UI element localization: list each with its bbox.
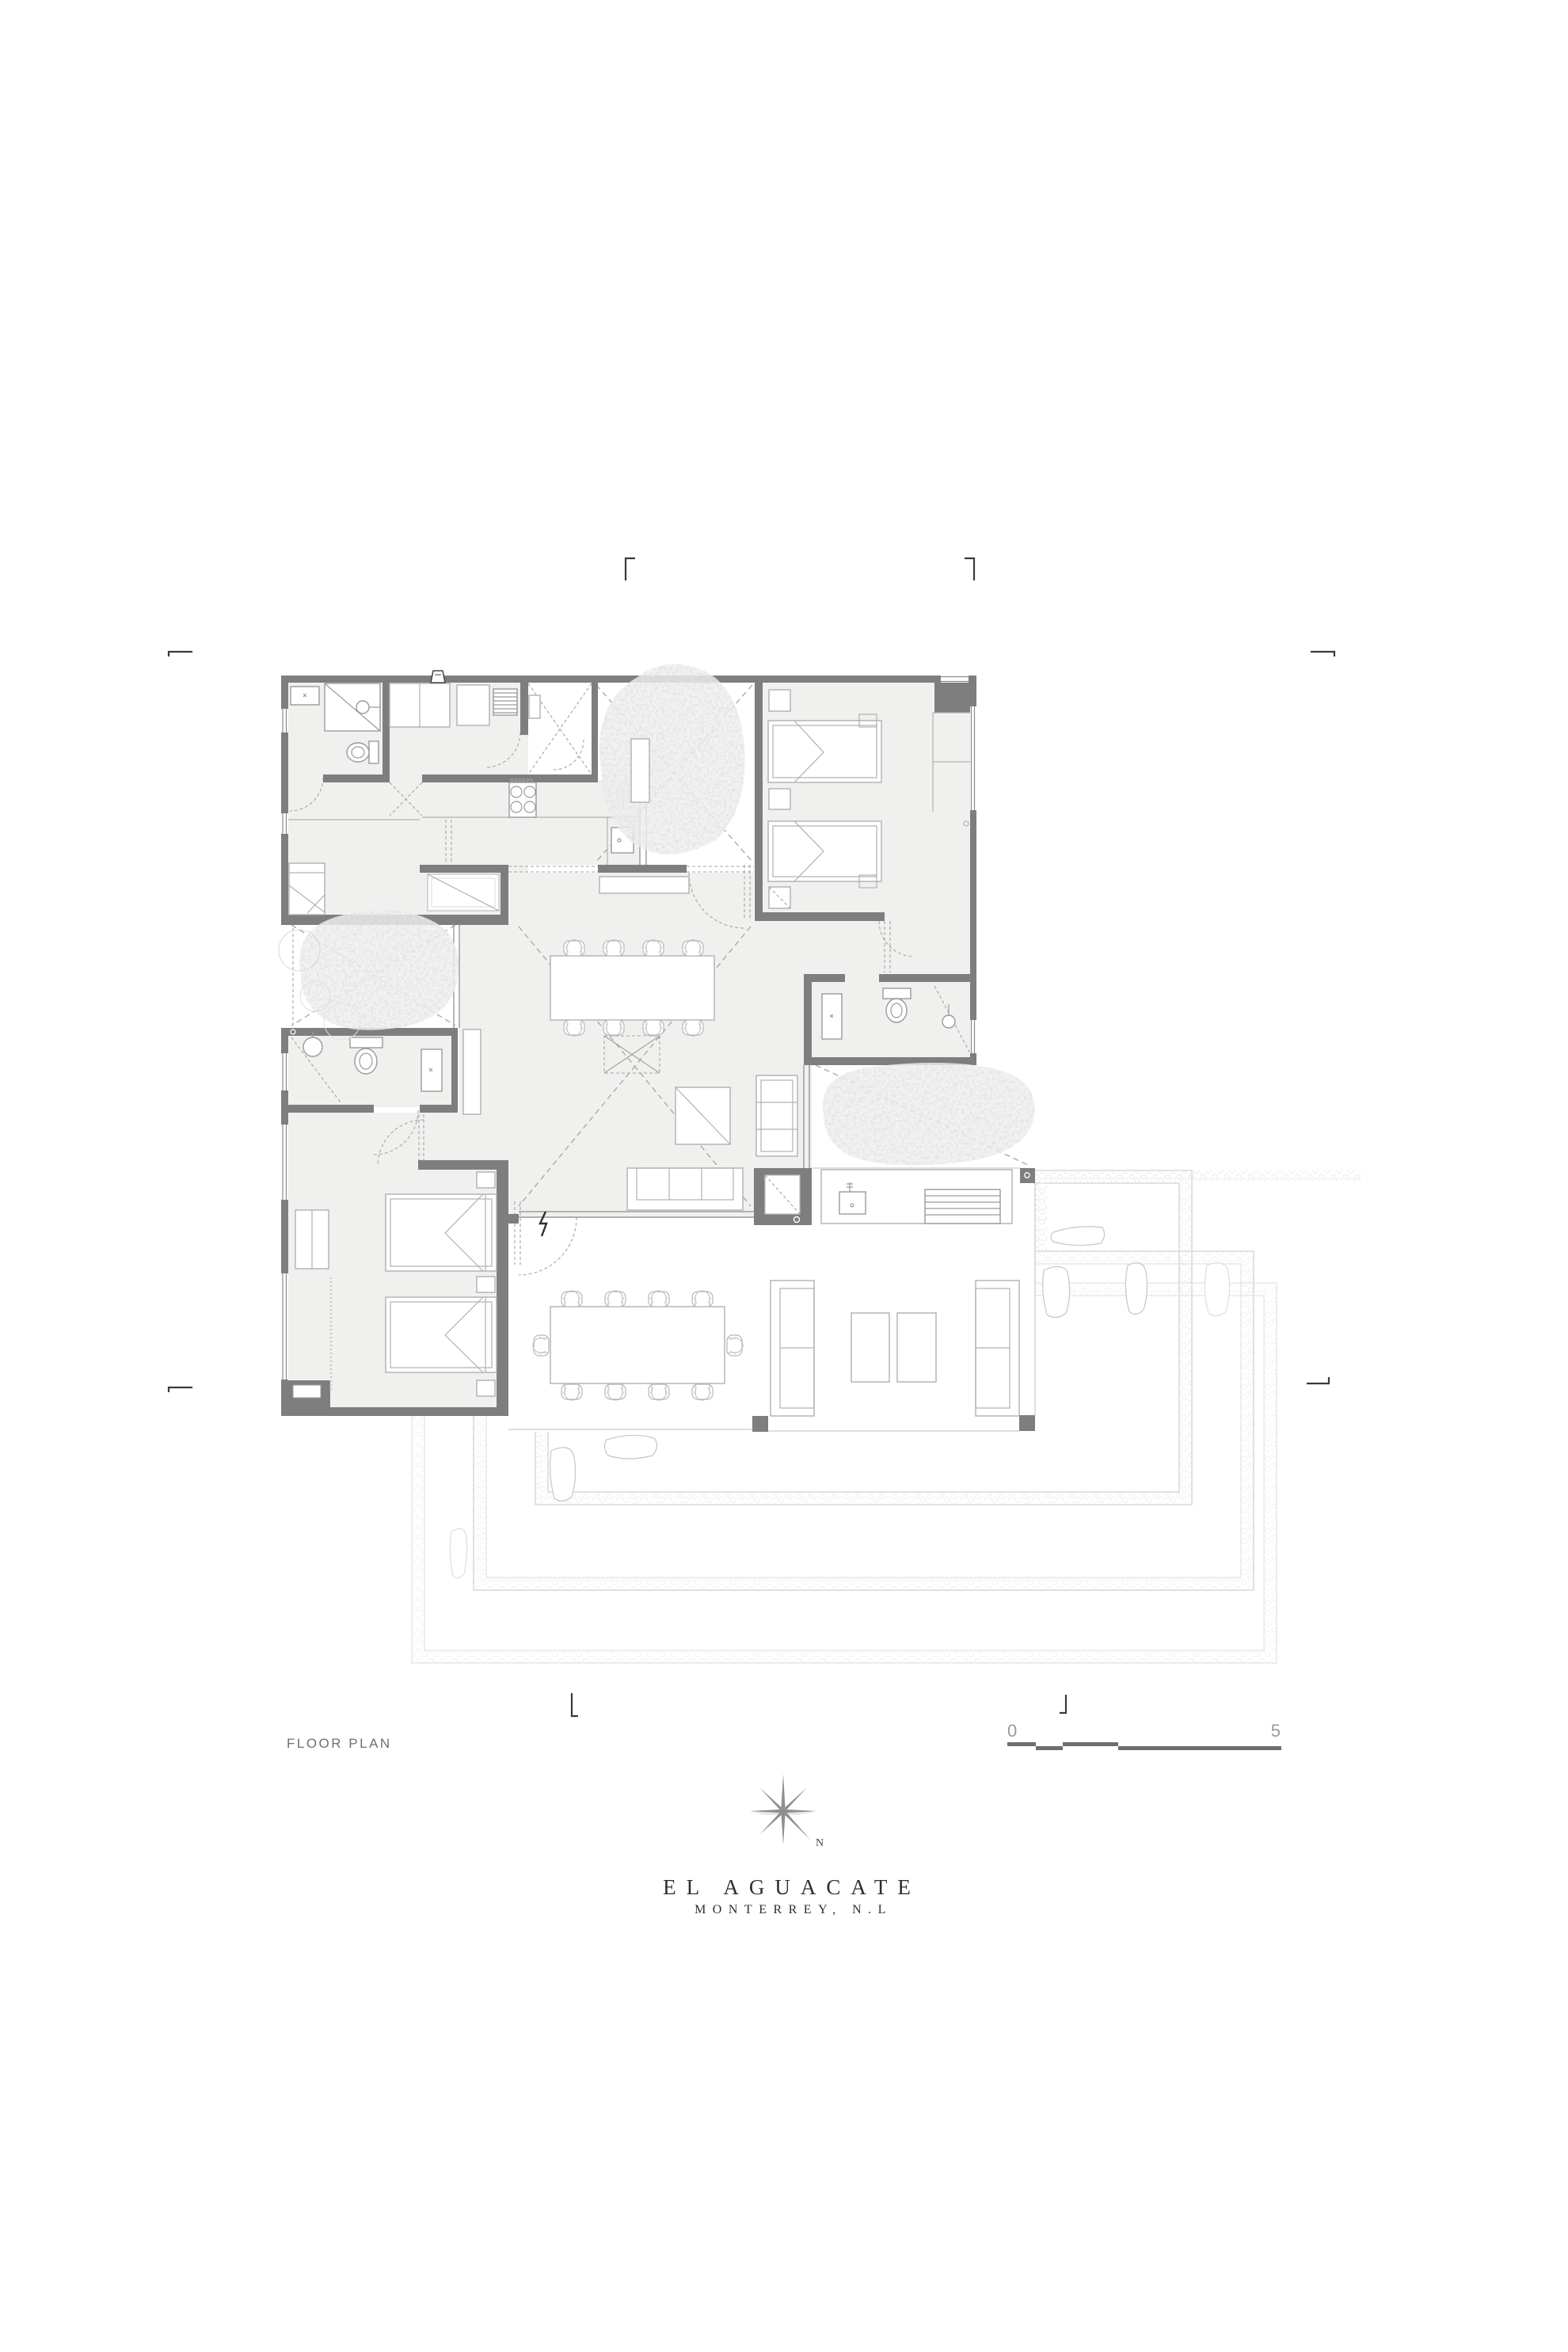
window <box>281 1273 288 1380</box>
crop-mark <box>572 1693 578 1716</box>
window <box>281 709 288 733</box>
crop-mark <box>965 558 974 580</box>
crop-mark <box>1060 1695 1066 1713</box>
bed-twin <box>768 821 881 888</box>
window <box>281 1125 288 1200</box>
tree-canopy <box>279 910 459 1040</box>
project-title: EL AGUACATE <box>663 1875 921 1899</box>
bookshelf <box>756 1075 797 1156</box>
window <box>281 1053 288 1090</box>
compass-north-label: N <box>816 1837 824 1849</box>
stove <box>509 779 536 818</box>
entry-closet <box>428 874 499 911</box>
window <box>281 813 288 834</box>
north-compass: N <box>750 1774 824 1849</box>
coffee-table <box>676 1087 730 1144</box>
outdoor-sofa <box>976 1281 1019 1416</box>
drawing-label: FLOOR PLAN <box>287 1736 392 1751</box>
doorbell-symbol <box>431 671 445 683</box>
crop-mark <box>626 558 635 580</box>
scale-start: 0 <box>1007 1721 1017 1741</box>
scale-bar: 0 5 <box>1007 1721 1281 1750</box>
outdoor-table <box>550 1307 725 1383</box>
outdoor-dining <box>533 1291 743 1400</box>
wardrobe <box>295 1210 329 1269</box>
toilet <box>347 741 379 763</box>
crop-mark <box>1307 1377 1329 1383</box>
rock <box>1205 1263 1229 1316</box>
terrace-column <box>752 1416 768 1432</box>
outdoor-fireplace <box>754 1168 812 1225</box>
rock <box>550 1448 576 1501</box>
tree-canopy <box>823 1063 1035 1165</box>
bed-double <box>386 1194 497 1271</box>
dining-table <box>550 956 714 1020</box>
project-title-block: EL AGUACATE MONTERREY, N.L <box>663 1875 921 1916</box>
living-dining-floor <box>508 873 812 1218</box>
outdoor-coffee-table <box>851 1313 889 1382</box>
crop-mark <box>169 1387 192 1392</box>
vent-grille <box>493 689 517 715</box>
rock <box>1125 1263 1147 1315</box>
outdoor-kitchen <box>821 1170 1012 1224</box>
rock <box>450 1528 466 1578</box>
nightstand <box>769 887 790 908</box>
scale-end: 5 <box>1271 1721 1281 1741</box>
shower <box>325 683 380 731</box>
nightstand <box>769 789 790 809</box>
nightstand <box>477 1277 495 1292</box>
planter-bench <box>631 739 649 802</box>
bed-single <box>289 863 325 915</box>
outdoor-coffee-table <box>897 1313 936 1382</box>
crop-mark <box>169 652 192 657</box>
floor-plan-sheet: FLOOR PLAN 0 5 N EL AGUACATE MONTERREY, … <box>0 0 1568 2352</box>
project-location: MONTERREY, N.L <box>695 1903 892 1916</box>
window <box>970 706 976 810</box>
shelf <box>529 695 540 718</box>
sofa <box>627 1168 743 1210</box>
nightstand <box>769 690 790 711</box>
window <box>970 1020 976 1053</box>
terrace-column <box>1020 1168 1035 1183</box>
outdoor-sink <box>839 1192 866 1214</box>
rock <box>1051 1227 1105 1246</box>
bed-double <box>386 1297 497 1372</box>
rock <box>1043 1266 1070 1317</box>
tree-canopy <box>599 664 745 854</box>
outdoor-sofa <box>771 1281 814 1416</box>
rock <box>604 1435 657 1459</box>
sideboard <box>599 877 689 893</box>
nightstand <box>477 1380 495 1396</box>
nightstand <box>477 1172 495 1188</box>
bed-twin <box>768 714 881 782</box>
dryer <box>457 685 489 725</box>
window <box>941 676 969 683</box>
door-swing <box>554 740 584 770</box>
terrace-column <box>1019 1415 1035 1431</box>
crop-mark <box>1311 652 1334 657</box>
grill <box>925 1189 1000 1224</box>
hall-console <box>463 1029 481 1114</box>
